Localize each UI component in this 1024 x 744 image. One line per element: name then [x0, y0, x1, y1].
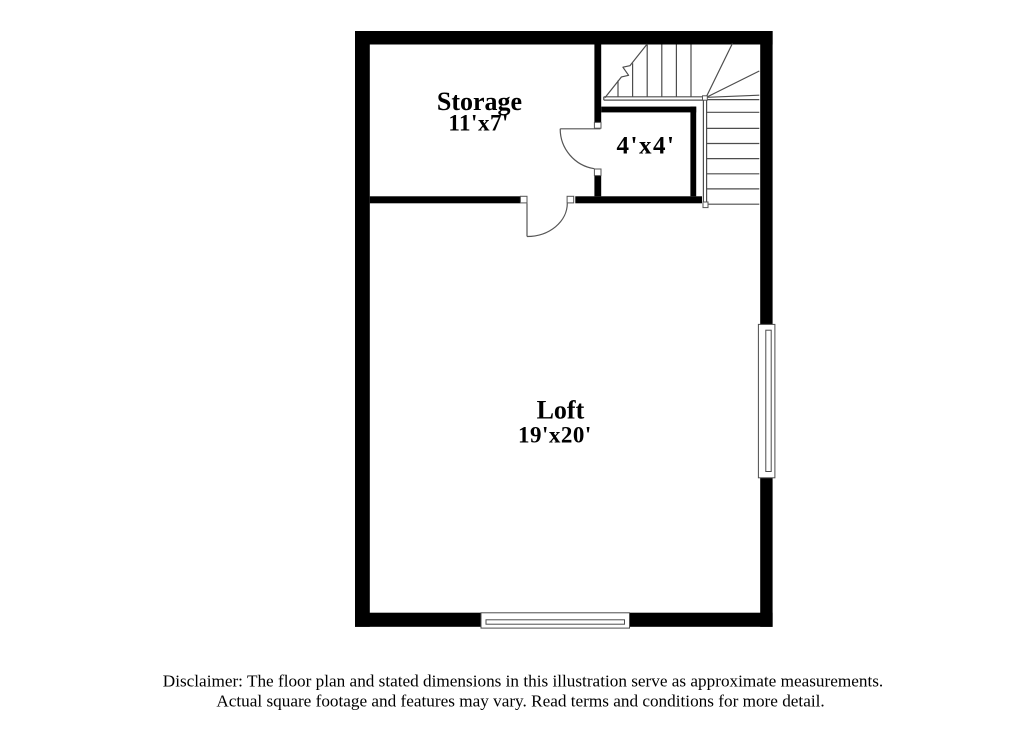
svg-text:Actual square footage and feat: Actual square footage and features may v… — [216, 691, 824, 710]
svg-text:Disclaimer: The floor plan and: Disclaimer: The floor plan and stated di… — [163, 672, 883, 691]
svg-text:Loft: Loft — [537, 396, 585, 425]
svg-text:19'x20': 19'x20' — [518, 422, 592, 447]
svg-text:4'x4': 4'x4' — [617, 133, 676, 160]
svg-text:11'x7': 11'x7' — [448, 111, 509, 136]
